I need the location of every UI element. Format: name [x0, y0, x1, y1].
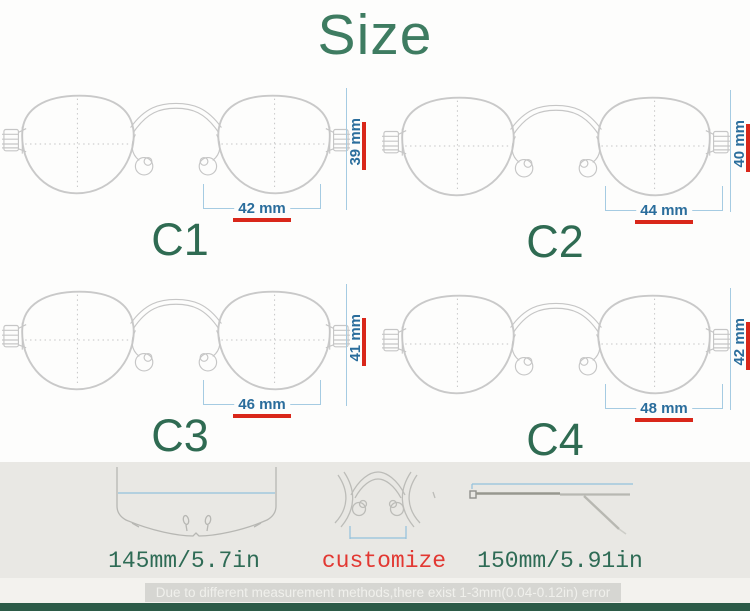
dimension-tick — [722, 186, 723, 211]
lens-width-dimension: 48 mm — [605, 396, 723, 426]
frame-front-length-value: 145mm/5.7in — [104, 548, 264, 574]
glasses-front-sketch — [382, 284, 730, 405]
lens-height-dimension: 42 mm — [728, 288, 750, 410]
lens-height-dimension: 41 mm — [344, 284, 370, 406]
lens-width-value: 48 mm — [636, 400, 692, 417]
red-accent-bar — [746, 322, 750, 370]
dimension-tick — [722, 384, 723, 409]
lens-height-dimension: 40 mm — [728, 90, 750, 212]
temple-arm-sketch — [470, 491, 630, 534]
lens-width-dimension: 44 mm — [605, 198, 723, 228]
variant-c2-section: 40 mm 44 mm C2 — [375, 82, 750, 280]
variant-c3-section: 41 mm 46 mm C3 — [0, 276, 375, 474]
dimension-tick — [605, 186, 606, 211]
variant-c4-section: 42 mm 48 mm C4 — [375, 280, 750, 478]
dimension-line — [472, 484, 633, 489]
variant-label: C3 — [115, 410, 245, 462]
variant-label: C4 — [490, 414, 620, 466]
red-accent-underline — [635, 220, 693, 224]
glasses-front-sketch — [2, 280, 350, 401]
dimension-tick — [605, 384, 606, 409]
dimension-line — [350, 526, 406, 539]
footer-green-bar — [0, 603, 750, 611]
glasses-front-sketch — [382, 86, 730, 207]
red-accent-bar — [362, 318, 366, 366]
bottom-sketches — [0, 462, 750, 603]
frame-topview-sketch — [117, 467, 276, 536]
glasses-front-sketch — [2, 84, 350, 205]
dimension-tick — [203, 184, 204, 209]
lens-height-dimension: 39 mm — [344, 88, 370, 210]
nose-bridge-customize-label: customize — [314, 548, 454, 574]
dimension-tick — [320, 184, 321, 209]
variant-label: C1 — [115, 214, 245, 266]
nose-bridge-sketch — [335, 472, 435, 527]
red-accent-bar — [746, 124, 750, 172]
dimension-tick — [320, 380, 321, 405]
size-chart-page: Size 39 mm 42 mm C1 40 mm 44 mm — [0, 0, 750, 611]
temple-length-value: 150mm/5.91in — [470, 548, 650, 574]
dimension-tick — [203, 380, 204, 405]
red-accent-underline — [635, 418, 693, 422]
measurement-panel: 145mm/5.7in customize 150mm/5.91in — [0, 462, 750, 603]
page-title: Size — [0, 2, 750, 68]
variant-c1-section: 39 mm 42 mm C1 — [0, 80, 375, 278]
lens-width-value: 44 mm — [636, 202, 692, 219]
variant-label: C2 — [490, 216, 620, 268]
red-accent-bar — [362, 122, 366, 170]
disclaimer-strip: Due to different measurement methods,the… — [145, 583, 621, 602]
